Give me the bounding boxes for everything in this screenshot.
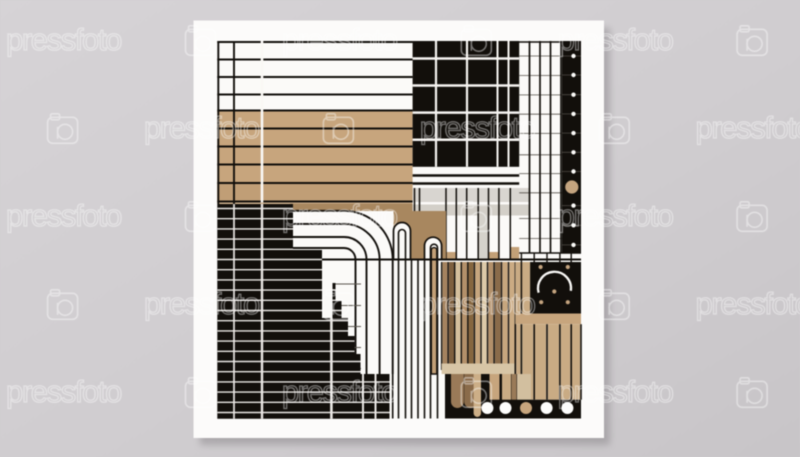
- svg-text:pressfoto: pressfoto: [558, 198, 673, 233]
- svg-text:pressfoto: pressfoto: [6, 198, 121, 233]
- svg-text:pressfoto: pressfoto: [696, 110, 800, 145]
- svg-text:pressfoto: pressfoto: [420, 110, 535, 145]
- svg-text:pressfoto: pressfoto: [282, 374, 397, 409]
- svg-text:pressfoto: pressfoto: [420, 286, 535, 321]
- svg-text:pressfoto: pressfoto: [696, 286, 800, 321]
- svg-text:pressfoto: pressfoto: [558, 22, 673, 57]
- svg-text:pressfoto: pressfoto: [6, 374, 121, 409]
- svg-text:pressfoto: pressfoto: [282, 198, 397, 233]
- svg-text:pressfoto: pressfoto: [144, 286, 259, 321]
- svg-text:pressfoto: pressfoto: [144, 110, 259, 145]
- svg-text:pressfoto: pressfoto: [6, 22, 121, 57]
- svg-text:pressfoto: pressfoto: [558, 374, 673, 409]
- svg-text:pressfoto: pressfoto: [282, 22, 397, 57]
